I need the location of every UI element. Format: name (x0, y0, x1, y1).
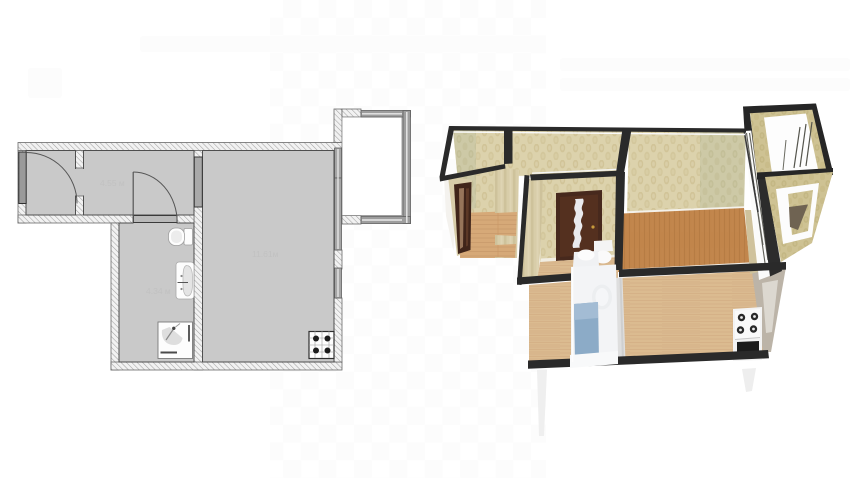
svg-text:11.61м: 11.61м (252, 249, 279, 259)
svg-text:4.34 м: 4.34 м (146, 286, 171, 296)
svg-text:4.55 м: 4.55 м (100, 178, 125, 188)
